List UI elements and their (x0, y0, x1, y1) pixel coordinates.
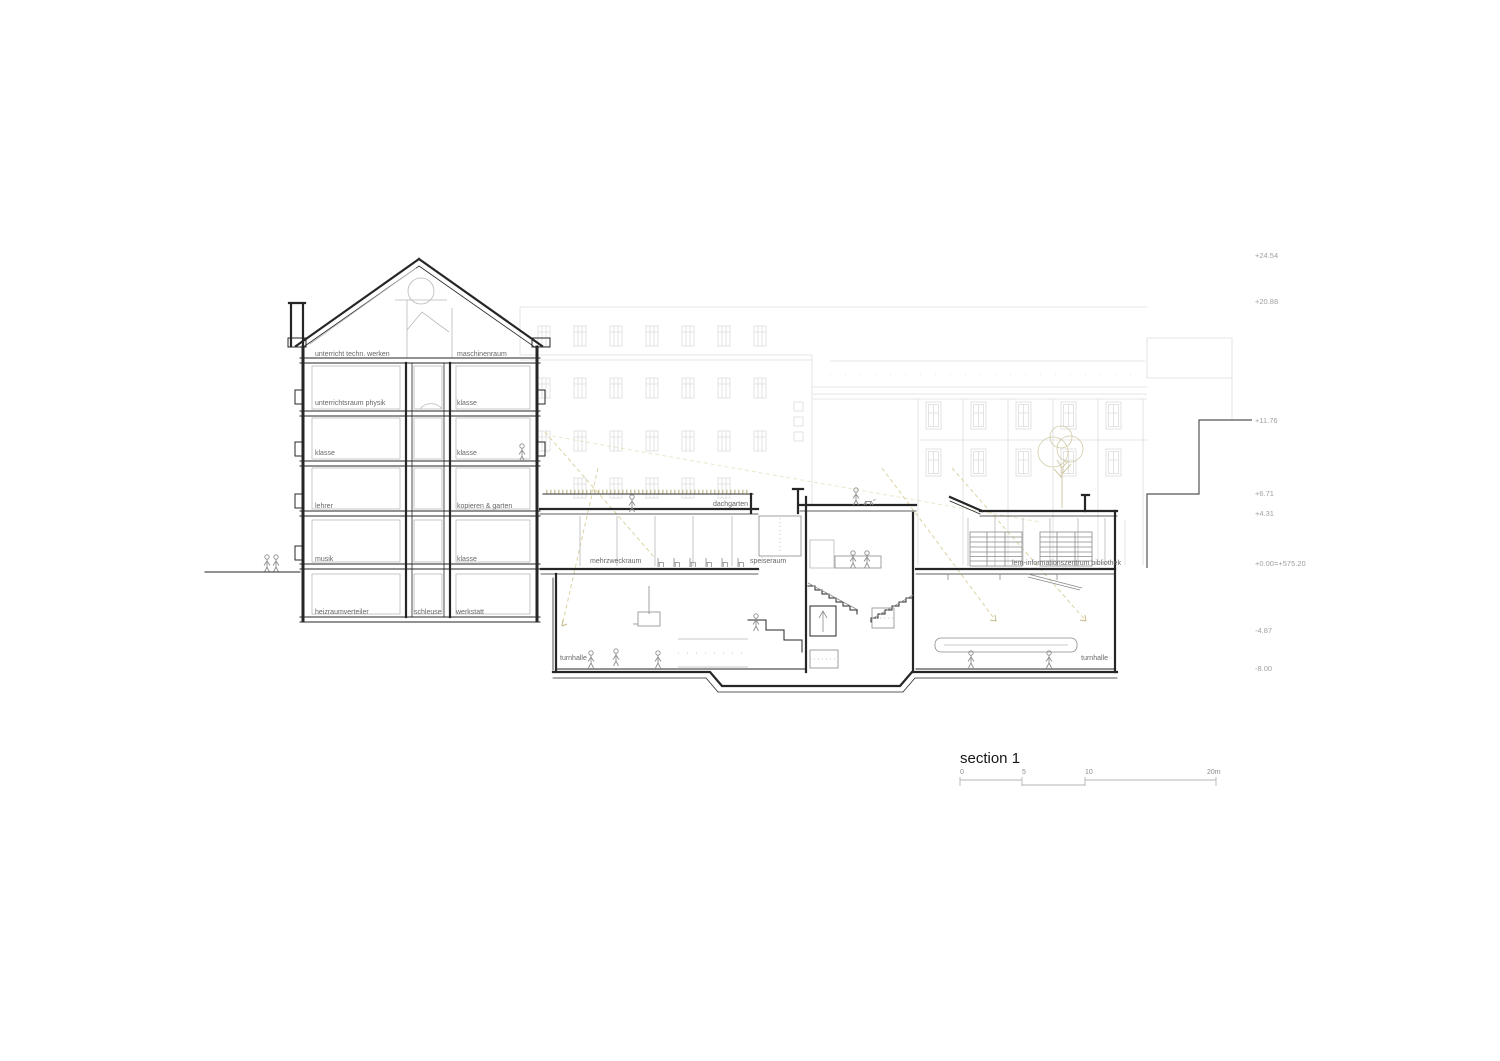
site-outline (1147, 420, 1252, 568)
elevation-11-76: +11.76 (1255, 416, 1278, 425)
room-label-musik: musik (315, 556, 334, 563)
title-block: section 1 0 5 10 20m (960, 750, 1221, 786)
room-label-kopieren-garten: kopieren & garten (457, 503, 512, 510)
room-label-turnhalle-left: turnhalle (560, 655, 587, 662)
elevation-6-71: +6.71 (1255, 489, 1274, 498)
room-label-turnhalle-right: turnhalle (1081, 655, 1108, 662)
room-label-werkstatt: werkstatt (455, 609, 484, 616)
room-label-unterrichtsraum-physik: unterrichtsraum physik (315, 400, 386, 407)
room-label-unterricht-techn-werken: unterricht techn. werken (315, 351, 390, 358)
scale-tick-5: 5 (1022, 769, 1026, 776)
room-label-mehrzweckraum: mehrzweckraum (590, 558, 642, 565)
room-label-klasse-f3: klasse (457, 400, 477, 407)
room-label-klasse-f2-left: klasse (315, 450, 335, 457)
scale-tick-0: 0 (960, 769, 964, 776)
old-building-section: unterricht techn. werken maschinenraum u… (205, 259, 550, 622)
elevation-20-88: +20.88 (1255, 297, 1278, 306)
room-label-speiseraum: speiseraum (750, 558, 786, 565)
elevation-4-31: +4.31 (1255, 509, 1274, 518)
room-label-klasse-f2-right: klasse (457, 450, 477, 457)
section-drawing: unterricht techn. werken maschinenraum u… (0, 0, 1500, 1061)
room-label-maschinenraum: maschinenraum (457, 351, 507, 358)
scale-bar (960, 777, 1216, 786)
room-label-schleuse: schleuse (414, 609, 442, 616)
elevation-markers: +24.54 +20.88 +11.76 +6.71 +4.31 +0.00=+… (1255, 251, 1306, 673)
architectural-section-sheet: unterricht techn. werken maschinenraum u… (0, 0, 1500, 1061)
elevation-minus-8-00: -8.00 (1255, 664, 1272, 673)
drawing-title: section 1 (960, 750, 1020, 767)
room-label-bibliothek: lern-informationszentrum bibliothek (1012, 560, 1121, 567)
elevation-0-00: +0.00=+575.20 (1255, 559, 1306, 568)
scale-tick-20m: 20m (1207, 769, 1221, 776)
elevation-24-54: +24.54 (1255, 251, 1278, 260)
room-label-lehrer: lehrer (315, 503, 334, 510)
elevation-minus-4-87: -4.87 (1255, 626, 1272, 635)
background-facades (520, 307, 1232, 565)
room-label-heizraumverteiler: heizraumverteiler (315, 609, 369, 616)
room-label-dachgarten: dachgarten (713, 501, 748, 508)
daylight-arrows (545, 432, 1086, 626)
scale-tick-10: 10 (1085, 769, 1093, 776)
new-building-section: dachgarten mehrzweckraum speiseraum (540, 488, 1121, 692)
room-label-klasse-f0: klasse (457, 556, 477, 563)
